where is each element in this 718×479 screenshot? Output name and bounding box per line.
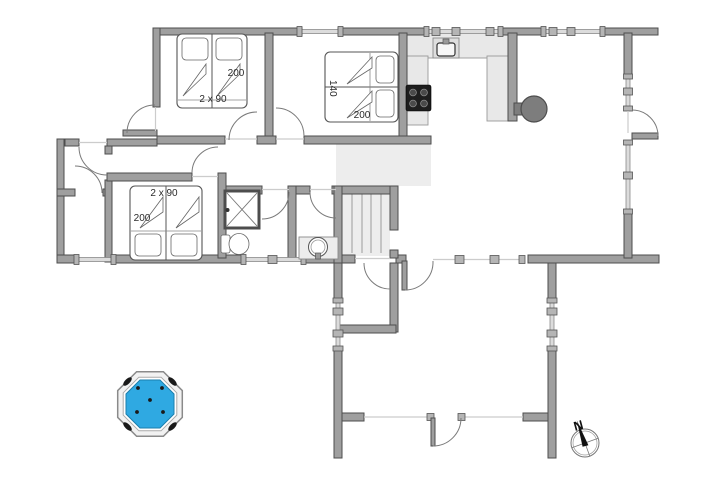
cooktop: [406, 85, 431, 111]
shower-drain-icon: [226, 208, 230, 212]
shower: [225, 191, 259, 228]
east-door-leaf: [632, 133, 658, 139]
terrace-door-arc: [405, 261, 433, 290]
pillow: [376, 90, 394, 117]
twin-beds-bottom-left: 2 x 90 200: [130, 186, 202, 260]
compass-rose: N: [571, 417, 599, 457]
terrace-door-leaf: [402, 261, 407, 290]
corridor-floor: [336, 144, 431, 186]
jet-icon: [148, 398, 152, 402]
twin-beds-top-left: 200 2 x 90: [177, 34, 247, 108]
bed-length-label: 200: [228, 68, 245, 79]
floor-plan-page: 200 2 x 90 140 200 2 x 90 200: [0, 0, 718, 479]
sauna-floor: [342, 190, 390, 256]
hot-tub-water: [126, 380, 174, 428]
secondary-floors: [336, 144, 431, 256]
bed-count-label: 2 x 90: [150, 188, 178, 199]
east-door-arc: [632, 110, 658, 136]
garden-gate-leaf: [431, 418, 435, 446]
pillow: [135, 234, 161, 256]
alcove-door-arc: [364, 263, 390, 289]
front-door-arc: [79, 147, 107, 175]
kitchen-sink: [433, 38, 459, 58]
garden-gate-arc: [433, 418, 461, 446]
burner-icon: [410, 100, 417, 107]
bed-length-label: 200: [134, 213, 151, 224]
burner-icon: [421, 89, 428, 96]
bed-width-label: 140: [327, 80, 338, 97]
wood-burning-stove: [514, 96, 547, 122]
bedroom2-door-arc: [276, 108, 304, 136]
tap-icon: [443, 39, 449, 44]
bedroom3-door-arc: [192, 147, 218, 173]
jet-icon: [161, 410, 165, 414]
double-bed-140: 140 200: [325, 52, 398, 122]
jet-icon: [136, 386, 140, 390]
burner-icon: [410, 89, 417, 96]
floor-plan-drawing: 200 2 x 90 140 200 2 x 90 200: [0, 0, 718, 479]
bedroom1-terrace-door-leaf: [123, 130, 157, 136]
washroom-door-arc: [310, 192, 336, 218]
kitchen-counter-east: [487, 56, 508, 121]
tap-icon: [316, 253, 321, 259]
entry-inner-door-arc: [75, 166, 102, 193]
bedroom1-door-arc: [229, 112, 257, 140]
toilet: [221, 234, 249, 255]
bathroom-door-arc: [262, 192, 289, 219]
pillow: [182, 38, 208, 60]
pillow: [376, 56, 394, 83]
jet-icon: [160, 386, 164, 390]
bed-count-label: 2 x 90: [199, 94, 227, 105]
pillow: [216, 38, 242, 60]
bedroom1-terrace-door-arc: [127, 105, 155, 133]
washbasin: [299, 237, 338, 259]
jet-icon: [135, 410, 139, 414]
hot-tub: [118, 372, 183, 437]
bed-length-label: 200: [354, 110, 371, 121]
compass-north-label: N: [572, 417, 585, 434]
pillow: [171, 234, 197, 256]
burner-icon: [421, 100, 428, 107]
